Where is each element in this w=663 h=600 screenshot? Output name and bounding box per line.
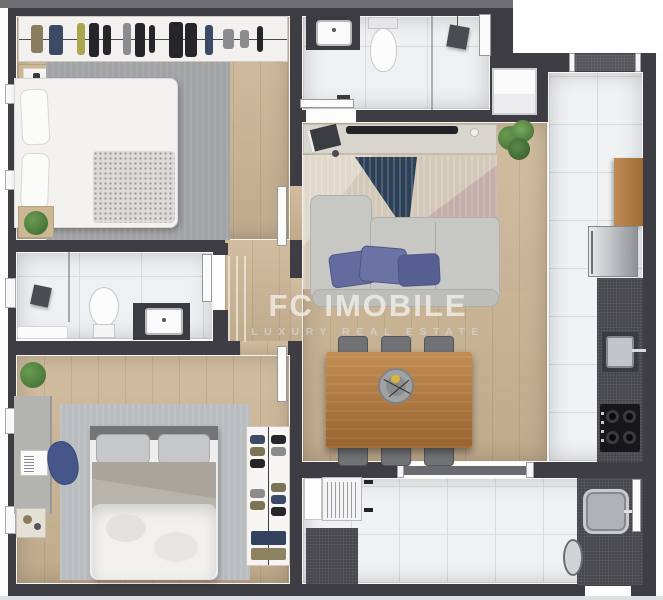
building-cutout — [513, 0, 663, 53]
wall-bedroom1-right-c — [290, 345, 302, 584]
wall-bathroom1-bottom-b — [356, 110, 490, 122]
kitchen-cooktop — [600, 404, 640, 452]
shower-glass-door — [479, 14, 491, 56]
wall-dining-laundry-b — [533, 462, 643, 478]
wall-top — [8, 8, 513, 16]
washer-hinge-tick — [364, 508, 373, 512]
washing-machine — [322, 477, 362, 521]
duvet-crumple — [106, 514, 146, 542]
bathroom1-vanity — [306, 16, 360, 50]
sofa-front-cushions — [312, 289, 499, 307]
laptop-keys — [24, 455, 34, 472]
wardrobe2-drawer-khaki — [251, 548, 286, 560]
window-bathroom2 — [5, 278, 16, 308]
bathroom2-toilet-bowl — [89, 287, 119, 327]
table-centerpiece — [378, 368, 414, 404]
laundry-slider-track — [404, 465, 526, 475]
kitchen-wood-cabinet — [614, 158, 643, 226]
kitchen-faucet-icon — [632, 349, 646, 352]
bed2-pillow-a — [96, 434, 150, 464]
tv-icon — [346, 126, 458, 134]
laptop-icon — [20, 450, 48, 476]
entry-closet — [492, 68, 537, 115]
bedroom1-door-leaf — [277, 186, 287, 246]
wall-bathroom2-right-a — [213, 243, 228, 255]
entry-doormat — [575, 54, 635, 71]
wall-bedroom2-top-stub — [288, 341, 302, 355]
side-table-decor — [34, 523, 41, 530]
bathroom1-sink — [316, 20, 352, 46]
bathroom2-shower-tray — [17, 326, 68, 339]
wall-bedroom1-right-b — [290, 240, 302, 278]
bathroom1-toilet-bowl — [370, 28, 397, 72]
bedroom1-door-gap-floor — [290, 186, 302, 240]
bathroom1-sliding-door — [300, 99, 354, 108]
bedroom1-wardrobe — [18, 16, 288, 62]
burner-icon — [623, 431, 636, 444]
burner-icon — [623, 410, 636, 423]
cooktop-knobs — [601, 412, 604, 446]
decor-dot-icon — [332, 150, 339, 157]
bed2-duvet — [92, 504, 216, 580]
laundry-bottom-door-gap — [585, 586, 631, 596]
washer-hinge-tick — [364, 480, 373, 484]
bathroom2-vanity — [133, 303, 190, 340]
bedroom1-nightstand-bottom — [18, 206, 54, 238]
centerpiece-lemon-icon — [391, 375, 400, 383]
bathroom2-shower-glass — [68, 252, 70, 322]
plant-icon — [24, 211, 48, 235]
wall-bedroom1-bottom — [16, 240, 225, 252]
exterior-top-strip — [0, 0, 513, 8]
laundry-slider-jamb-right — [526, 462, 534, 478]
bucket-icon — [563, 539, 583, 576]
wall-right — [643, 53, 656, 584]
bathroom1-faucet-icon — [332, 28, 336, 32]
duvet-crumple — [154, 532, 198, 562]
bedroom2-side-table — [16, 508, 46, 538]
kitchen-fridge — [588, 226, 638, 277]
candle-icon — [470, 128, 479, 137]
laundry-corner-counter — [306, 528, 358, 584]
entry-closet-shelf — [494, 94, 535, 113]
laundry-cabinet — [304, 478, 322, 520]
wall-bathroom1-right — [490, 16, 502, 55]
burner-icon — [606, 410, 619, 423]
bedroom2-bed — [90, 426, 218, 580]
bathroom1-shower-glass — [431, 16, 433, 110]
fridge-handle — [591, 231, 593, 274]
laundry-sink — [583, 489, 629, 534]
bedroom2-wardrobe — [246, 426, 290, 566]
hall-passage-floor — [290, 278, 302, 345]
bed1-blanket — [93, 151, 175, 223]
entry-door-jamb-right — [635, 53, 641, 72]
exterior-bottom-strip — [0, 596, 663, 600]
washer-ridges — [327, 482, 359, 518]
wall-bathroom1-bottom-a — [302, 110, 306, 122]
wall-bottom — [8, 584, 656, 596]
kitchen-sink — [602, 332, 638, 372]
kitchen-sink-basin — [606, 336, 634, 368]
bed1-pillow-b — [20, 153, 50, 210]
floor-plan: FC IMOBILE LUXURY REAL ESTATE — [0, 0, 663, 600]
bed2-pillow-b — [158, 434, 210, 464]
bathroom2-toilet-base — [93, 324, 115, 338]
bathroom2-faucet-icon — [162, 318, 166, 322]
sofa-pillow-3 — [397, 253, 441, 287]
bed1-pillow-a — [20, 88, 51, 145]
wall-bedroom2-top — [16, 341, 240, 355]
bedroom2-plant — [20, 360, 50, 392]
sliding-door-handle — [337, 95, 350, 99]
bathroom1-shower-head-icon — [446, 24, 470, 49]
wardrobe2-drawer-navy — [251, 531, 286, 545]
side-table-decor — [23, 515, 32, 524]
door-swing-shading — [228, 256, 252, 342]
bedroom2-door-leaf — [277, 346, 287, 402]
living-plant — [496, 120, 536, 162]
burner-icon — [606, 431, 619, 444]
bathroom1-shower-cord — [457, 16, 458, 27]
laundry-service-door — [632, 479, 641, 532]
bathroom2-door-leaf — [202, 254, 212, 302]
